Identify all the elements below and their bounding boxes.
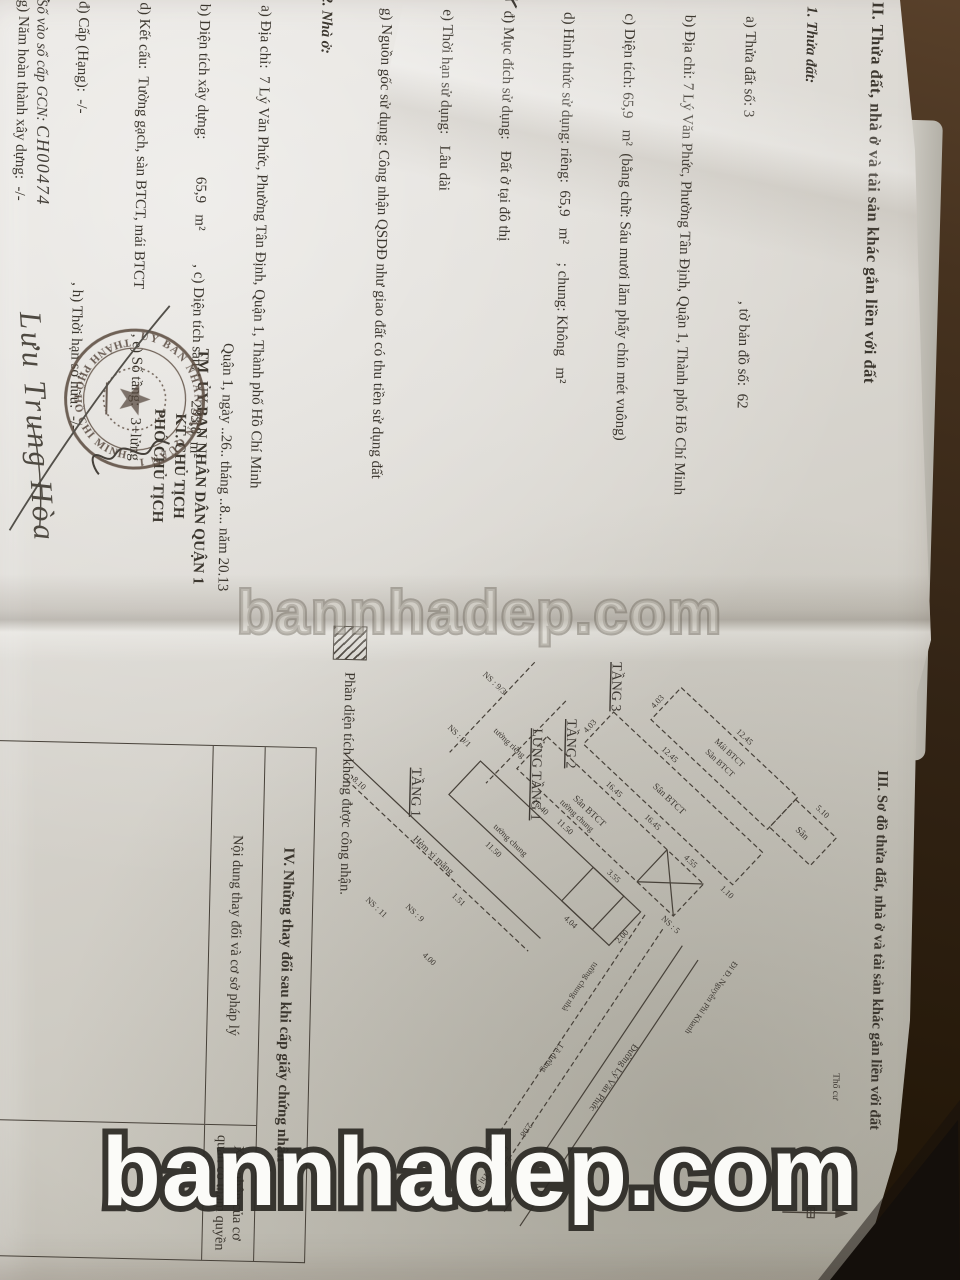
table-col1-header: Nội dung thay đổi và cơ sở pháp lý (204, 746, 265, 1125)
legend-row: Phần diện tích không được công nhận. (327, 626, 367, 896)
neighbor-label: NS : 9 (404, 902, 427, 924)
neighbor-label: NS : 9/1 (446, 722, 473, 749)
section-iii-heading: III. Sơ đồ thửa đất, nhà ở và tài sản kh… (862, 640, 893, 1260)
dim-label: 4.03 (648, 693, 665, 711)
sec1-line: g) Nguồn gốc sử dụng: Công nhận QSDĐ như… (363, 0, 397, 605)
dim-label: 4.55 (682, 852, 700, 869)
book-entry-value: CH00474 (33, 125, 53, 206)
sec1-title: 1. Thửa đất: (787, 6, 821, 614)
plan-tang1: 16.40 11.50 3.55 4.04 2.00 (439, 752, 655, 961)
sec2-title: 2. Nhà ở: (303, 0, 337, 603)
table-col-confirm: Xác nhận của cơ quan có thẩm quyền (0, 1120, 256, 1261)
dim-label: 11.50 (483, 839, 504, 859)
dim-label: 2.00 (613, 927, 630, 945)
sec1-line: e) Thời hạn sử dụng: Lâu dài (424, 0, 458, 606)
dim-label: 16.45 (643, 812, 664, 832)
table-col-content: Nội dung thay đổi và cơ sở pháp lý (0, 741, 265, 1126)
dim-label: 12.45 (660, 744, 681, 764)
neighbor-label: NS : 9/3 (481, 669, 508, 696)
dim-label: 12.45 (735, 726, 756, 746)
dim-label: 1.10 (718, 883, 736, 900)
street-label: Lề đường (538, 1042, 565, 1075)
sec1-line: đ) Mục đích sử dụng: Đất ở tại đô thị (484, 0, 518, 608)
dim-label: 4.00 (421, 950, 439, 967)
tho-cu-label: Thổ cư (830, 1073, 842, 1101)
section-iv-table: IV. Những thay đổi sau khi cấp giấy chứn… (0, 740, 317, 1263)
area-label: Sân (793, 825, 810, 842)
book-entry-label: Số vào sổ cấp GCN: (33, 0, 49, 125)
sec1-line: c) Diện tích: 65,9 m² (bằng chữ: Sáu mươ… (605, 2, 639, 610)
sec1-line: b) Địa chỉ: 7 Lý Văn Phức, Phường Tân Đị… (666, 3, 700, 611)
dim-label: 3.55 (605, 867, 623, 884)
street-label: Hẻm xi măng (411, 834, 456, 877)
floor-label-tang1: TẦNG 1 (407, 767, 425, 817)
sec1-line: a) Thửa đất số: 3 , tờ bản đồ số: 62 (727, 5, 761, 613)
street-ly-van-phuc: Đường Lý Văn Phức Lề đường Đi Đ. Nguyễn … (466, 911, 741, 1231)
dim-label: 16.45 (604, 779, 625, 799)
direction-label: Đi Đ. Nguyễn Phi Khanh (683, 960, 740, 1037)
cadastral-floor-plan-diagram: TẦNG 3 TẦNG 2 LỬNG TẦNG 1 TẦNG 1 Mái BTC… (333, 600, 868, 1272)
legend-label: Phần diện tích không được công nhận. (336, 672, 358, 895)
certificate-paper: II. Thửa đất, nhà ở và tài sản khác gắn … (0, 0, 960, 1280)
floor-label-tang2: TẦNG 2 (562, 719, 580, 769)
neighbor-label: NS : 11 (364, 895, 390, 920)
sec1-line: d) Hình thức sử dụng: riêng: 65,9 m² ; c… (545, 1, 579, 609)
table-col2-header: Xác nhận của cơ quan có thẩm quyền (201, 1125, 256, 1261)
dim-label: 5.10 (814, 803, 832, 820)
photo-background: II. Thửa đất, nhà ở và tài sản khác gắn … (0, 0, 960, 1280)
wall-label: tường riêng (492, 726, 528, 761)
sec2-line: a) Địa chỉ: 7 Lý Văn Phức, Phường Tân Đị… (242, 0, 276, 602)
dim-label: 4.03 (581, 717, 598, 735)
dim-label: 1.51 (450, 891, 468, 908)
document-rotated-content: II. Thửa đất, nhà ở và tài sản khác gắn … (0, 0, 960, 1274)
wall-label: tường chung nhà (560, 961, 601, 1014)
north-arrow-icon (782, 1207, 848, 1218)
floor-label-tang3: TẦNG 3 (608, 662, 626, 712)
plan-tang3: Mái BTCT Sân BTCT Sân 12.45 5.10 4.03 (642, 669, 848, 868)
neighbor-label: NS : 5 (660, 913, 683, 935)
book-entry-handwriting: Số vào sổ cấp GCN: CH00474 (32, 0, 53, 206)
hatch-legend-swatch (333, 626, 368, 661)
